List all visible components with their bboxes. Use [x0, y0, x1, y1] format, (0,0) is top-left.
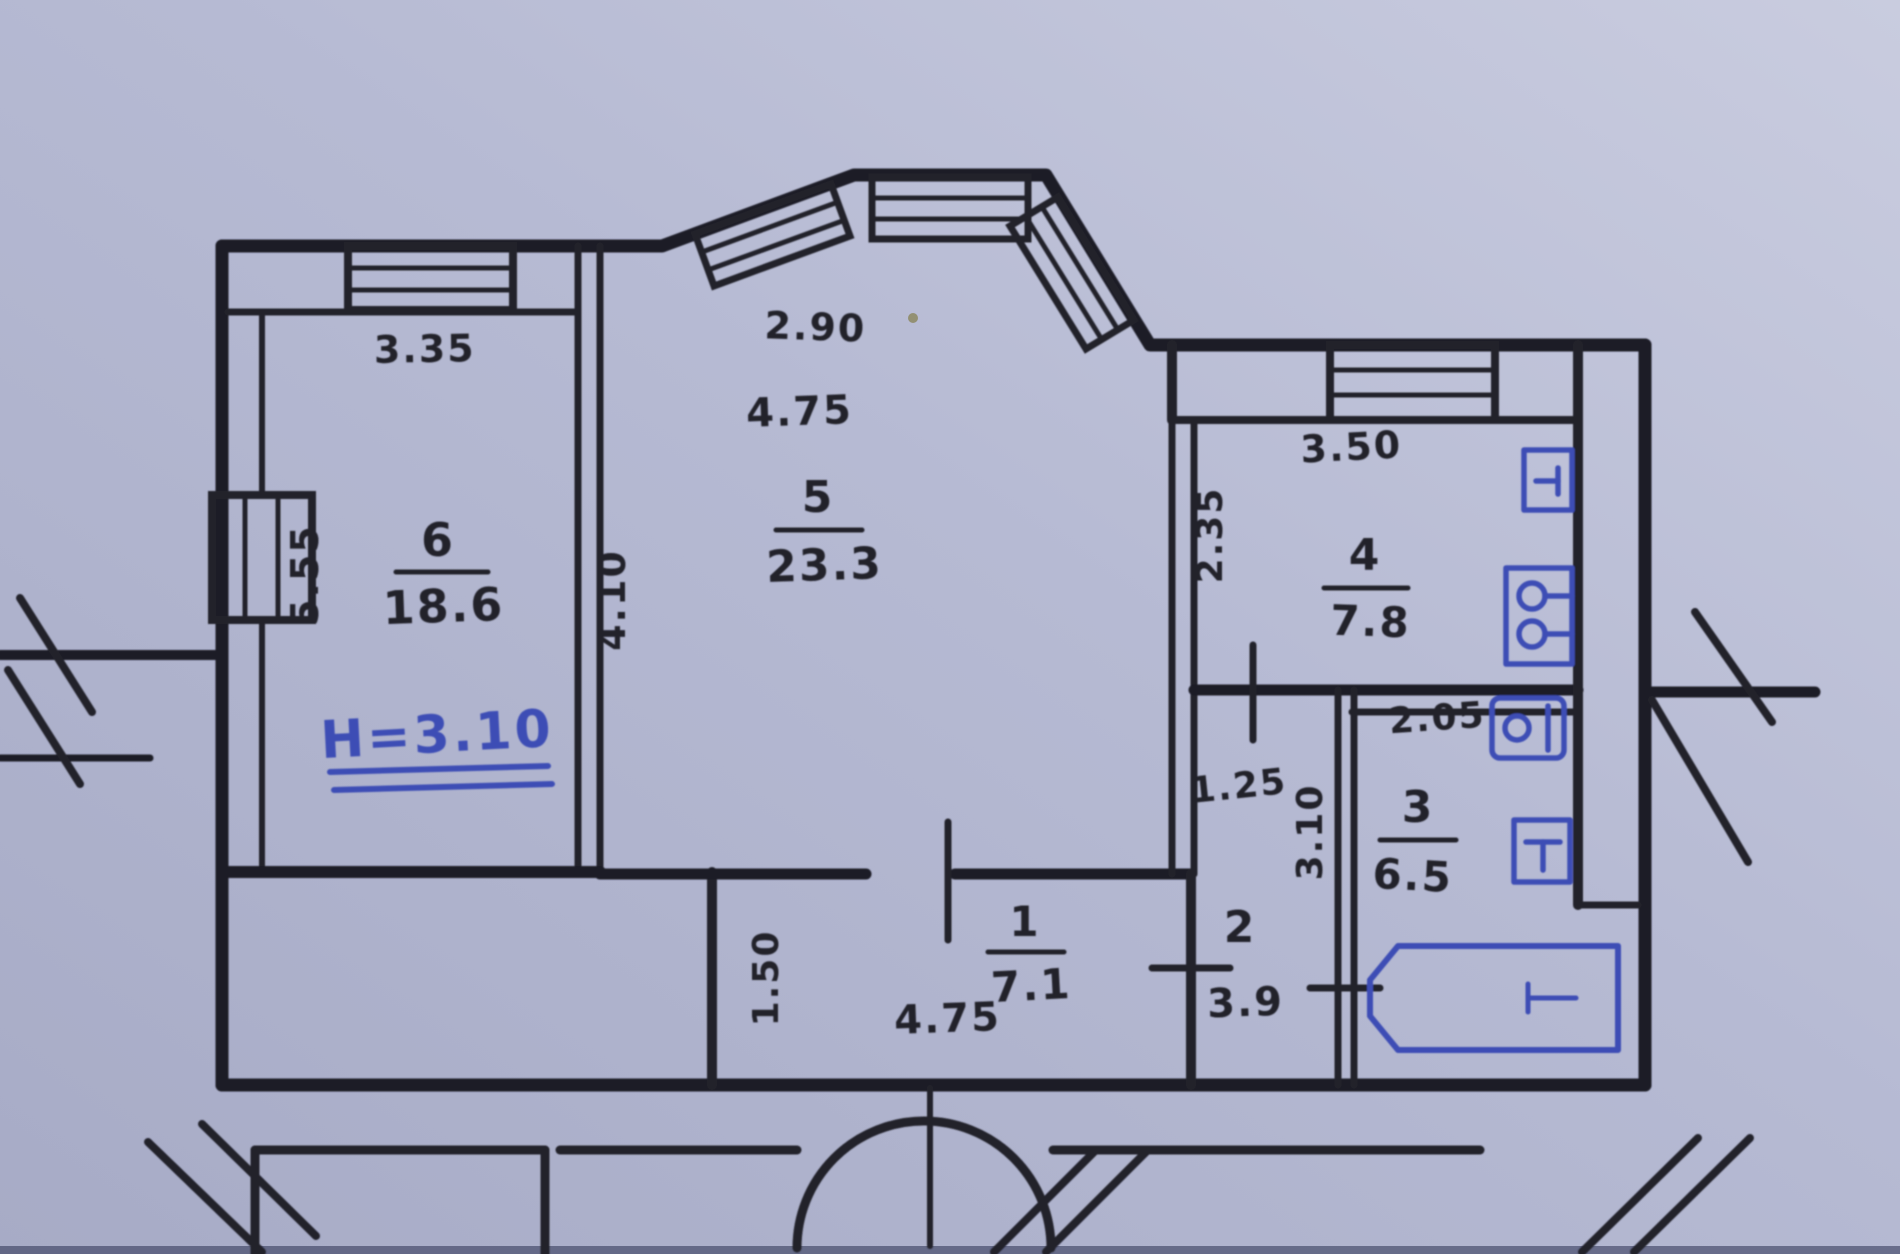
room-4-area: 7.8	[1329, 596, 1411, 648]
dim-kitchen-width: 3.50	[1299, 422, 1403, 471]
photo-edge	[0, 1246, 1900, 1254]
room-5-number: 5	[802, 472, 835, 523]
floor-plan-drawing: 3.35 5.55 2.90 4.75 4.10 3.50 2.35 2.05 …	[0, 0, 1900, 1254]
dim-bath-width: 2.05	[1387, 695, 1486, 743]
floor-plan-photo: 3.35 5.55 2.90 4.75 4.10 3.50 2.35 2.05 …	[0, 0, 1900, 1254]
dim-hall-width: 4.75	[893, 994, 1001, 1044]
room-5-area: 23.3	[765, 538, 883, 593]
room-4-number: 4	[1349, 530, 1382, 581]
ceiling-height-text: H=3.10	[319, 699, 555, 771]
paper-speck	[908, 313, 918, 323]
dim-bay-width: 2.90	[764, 303, 867, 351]
paper-background	[0, 0, 1900, 1254]
dim-bath-depth: 3.10	[1290, 784, 1331, 881]
room-3-number: 3	[1402, 782, 1435, 833]
dim-room6-width: 3.35	[374, 326, 477, 372]
dim-room6-depth: 5.55	[283, 524, 327, 626]
room-6-area: 18.6	[382, 577, 505, 635]
dim-room5-depth: 4.10	[590, 549, 634, 651]
room-6-number: 6	[421, 513, 455, 567]
dim-hall-depth: 1.50	[746, 930, 787, 1027]
room-3-area: 6.5	[1371, 849, 1454, 902]
room-1-area: 7.1	[990, 959, 1073, 1012]
dim-kitchen-depth: 2.35	[1190, 487, 1231, 584]
dim-room5-width: 4.75	[745, 387, 853, 437]
room-2-number: 2	[1224, 902, 1257, 953]
room-1-number: 1	[1009, 897, 1040, 946]
room-2-area: 3.9	[1206, 979, 1284, 1028]
